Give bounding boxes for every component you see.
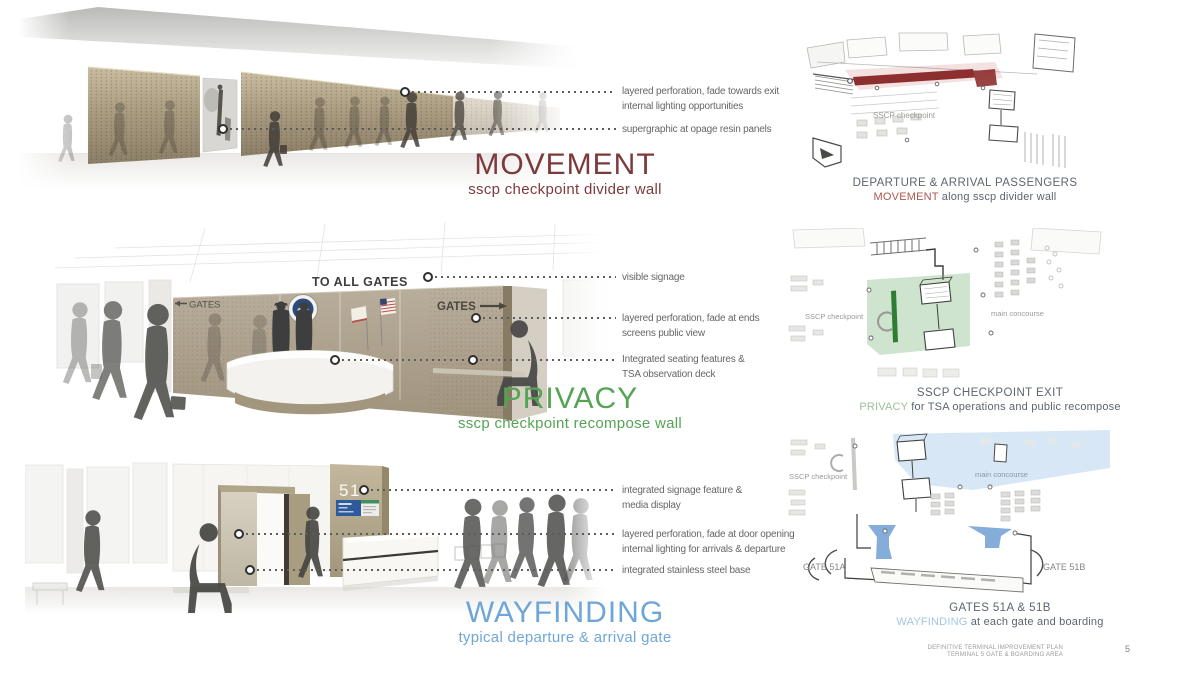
plan-caption-keyword: MOVEMENT bbox=[874, 191, 939, 203]
section-title: MOVEMENT bbox=[425, 149, 705, 181]
section-title: WAYFINDING bbox=[412, 597, 718, 629]
privacy-title-block: PRIVACY sscp checkpoint recompose wall bbox=[420, 383, 720, 432]
callout-marker bbox=[234, 529, 244, 539]
leader-line bbox=[246, 533, 616, 535]
leader-line bbox=[412, 91, 616, 93]
annotation-movement-1: layered perforation, fade towards exit i… bbox=[622, 84, 779, 114]
to-all-gates-sign: TO ALL GATES bbox=[312, 275, 408, 289]
callout-marker bbox=[471, 313, 481, 323]
annotation-wayfinding-1: integrated signage feature & media displ… bbox=[622, 483, 742, 513]
wayfinding-rendering: 51 bbox=[25, 437, 610, 615]
plan-caption-keyword: WAYFINDING bbox=[896, 616, 967, 628]
plan-curved-bench bbox=[831, 455, 843, 471]
plan-structure bbox=[994, 444, 1007, 462]
leader-line bbox=[342, 359, 616, 361]
callout-marker bbox=[218, 124, 228, 134]
annotation-line: layered perforation, fade at ends bbox=[622, 311, 759, 326]
slide-canvas: layered perforation, fade towards exit i… bbox=[0, 0, 1200, 680]
section-title: PRIVACY bbox=[420, 383, 720, 415]
annotation-line: visible signage bbox=[622, 270, 685, 285]
callout-marker bbox=[400, 87, 410, 97]
plan-caption-line1: DEPARTURE & ARRIVAL PASSENGERS bbox=[820, 177, 1110, 190]
section-subtitle: typical departure & arrival gate bbox=[412, 629, 718, 646]
annotation-privacy-2: layered perforation, fade at ends screen… bbox=[622, 311, 759, 341]
plan-caption-line1: GATES 51A & 51B bbox=[845, 602, 1155, 615]
annotation-privacy-1: visible signage bbox=[622, 270, 685, 285]
slide-footer: DEFINITIVE TERMINAL IMPROVEMENT PLAN TER… bbox=[900, 645, 1063, 659]
plan-label-sscp-checkpoint: SSCP checkpoint bbox=[805, 312, 864, 321]
plan-caption-keyword: PRIVACY bbox=[859, 401, 908, 413]
movement-highlight bbox=[845, 62, 1003, 90]
plan-linework bbox=[793, 228, 1101, 254]
annotation-wayfinding-3: integrated stainless steel base bbox=[622, 563, 750, 578]
plan-label-gate-51a: GATE 51A bbox=[803, 562, 845, 572]
callout-marker bbox=[423, 272, 433, 282]
wayfinding-plan-caption: GATES 51A & 51B WAYFINDING at each gate … bbox=[845, 602, 1155, 629]
section-subtitle: sscp checkpoint divider wall bbox=[425, 181, 705, 198]
movement-floor-plan: SSCP checkpoint bbox=[787, 28, 1090, 176]
left-fade bbox=[20, 5, 70, 190]
plan-caption-rest: along sscp divider wall bbox=[939, 191, 1057, 203]
movement-plan-caption: DEPARTURE & ARRIVAL PASSENGERS MOVEMENT … bbox=[820, 177, 1110, 204]
annotation-wayfinding-2: layered perforation, fade at door openin… bbox=[622, 527, 794, 557]
page-number: 5 bbox=[1125, 644, 1130, 654]
right-fade bbox=[565, 437, 610, 615]
plan-label-sscp-checkpoint: SSCP checkpoint bbox=[873, 111, 936, 120]
plan-label-sscp-checkpoint: SSCP checkpoint bbox=[789, 472, 848, 481]
annotation-line: layered perforation, fade towards exit bbox=[622, 84, 779, 99]
plan-corridor bbox=[870, 238, 927, 255]
plan-seat-clusters bbox=[931, 490, 1040, 521]
annotation-line: internal lighting for arrivals & departu… bbox=[622, 542, 794, 557]
supergraphic-mural bbox=[203, 78, 237, 152]
leader-line bbox=[257, 569, 616, 571]
leader-line bbox=[371, 489, 616, 491]
callout-marker bbox=[245, 565, 255, 575]
plan-caption-line2: MOVEMENT along sscp divider wall bbox=[820, 191, 1110, 204]
gate-door bbox=[218, 485, 310, 589]
annotation-line: Integrated seating features & bbox=[622, 352, 745, 367]
plan-label-gate-51b: GATE 51B bbox=[1043, 562, 1085, 572]
plan-caption-line2: WAYFINDING at each gate and boarding bbox=[845, 616, 1155, 629]
plan-caption-rest: at each gate and boarding bbox=[967, 616, 1103, 628]
footer-line2: TERMINAL 5 GATE & BOARDING AREA bbox=[900, 652, 1063, 659]
annotation-movement-2: supergraphic at opage resin panels bbox=[622, 122, 771, 137]
svg-text:GATES: GATES bbox=[437, 301, 476, 313]
plan-seat-rows bbox=[1025, 132, 1065, 168]
ceiling-grid bbox=[55, 222, 610, 282]
annotation-line: media display bbox=[622, 498, 742, 513]
plan-concourse-furniture bbox=[995, 240, 1035, 297]
annotation-privacy-3: Integrated seating features & TSA observ… bbox=[622, 352, 745, 382]
divider-wall-panel-a bbox=[88, 67, 200, 164]
plan-label-main-concourse: main concourse bbox=[991, 309, 1044, 318]
svg-text:GATES: GATES bbox=[189, 300, 221, 311]
annotation-line: integrated signage feature & bbox=[622, 483, 742, 498]
gate-51a-flow bbox=[868, 525, 896, 559]
wayfinding-title-block: WAYFINDING typical departure & arrival g… bbox=[412, 597, 718, 646]
annotation-line: layered perforation, fade at door openin… bbox=[622, 527, 794, 542]
leader-line bbox=[483, 317, 616, 319]
plan-terminal-edge bbox=[871, 568, 1023, 592]
callout-marker bbox=[468, 355, 478, 365]
gate-info-display bbox=[336, 500, 379, 516]
privacy-plan-caption: SSCP CHECKPOINT EXIT PRIVACY for TSA ope… bbox=[835, 387, 1145, 414]
plan-furniture bbox=[878, 368, 959, 377]
movement-title-block: MOVEMENT sscp checkpoint divider wall bbox=[425, 149, 705, 198]
plan-checkpoint-equipment bbox=[789, 276, 823, 341]
leader-line bbox=[230, 128, 616, 130]
plan-gate-arrow bbox=[813, 138, 841, 167]
annotation-line: supergraphic at opage resin panels bbox=[622, 122, 771, 137]
gate-counter bbox=[343, 532, 444, 591]
annotation-line: screens public view bbox=[622, 326, 759, 341]
plan-kiosks bbox=[989, 90, 1018, 142]
plan-caption-line1: SSCP CHECKPOINT EXIT bbox=[835, 387, 1145, 400]
plan-cafe-tables bbox=[1045, 246, 1063, 288]
privacy-floor-plan: SSCP checkpoint main concourse bbox=[783, 228, 1105, 385]
callout-marker bbox=[330, 355, 340, 365]
annotation-line: internal lighting opportunities bbox=[622, 99, 779, 114]
leader-line bbox=[435, 276, 616, 278]
plan-label-main-concourse: main concourse bbox=[975, 470, 1028, 479]
section-subtitle: sscp checkpoint recompose wall bbox=[420, 415, 720, 432]
footer-line1: DEFINITIVE TERMINAL IMPROVEMENT PLAN bbox=[900, 645, 1063, 652]
plan-caption-rest: for TSA operations and public recompose bbox=[908, 401, 1121, 413]
plan-caption-line2: PRIVACY for TSA operations and public re… bbox=[835, 401, 1145, 414]
annotation-line: TSA observation deck bbox=[622, 367, 745, 382]
gate-51b-flow bbox=[968, 526, 1012, 548]
gate-number-sign: 51 bbox=[339, 481, 361, 500]
callout-marker bbox=[359, 485, 369, 495]
annotation-line: integrated stainless steel base bbox=[622, 563, 750, 578]
wayfinding-floor-plan: SSCP checkpoint main concourse GATE 51A … bbox=[785, 430, 1110, 602]
